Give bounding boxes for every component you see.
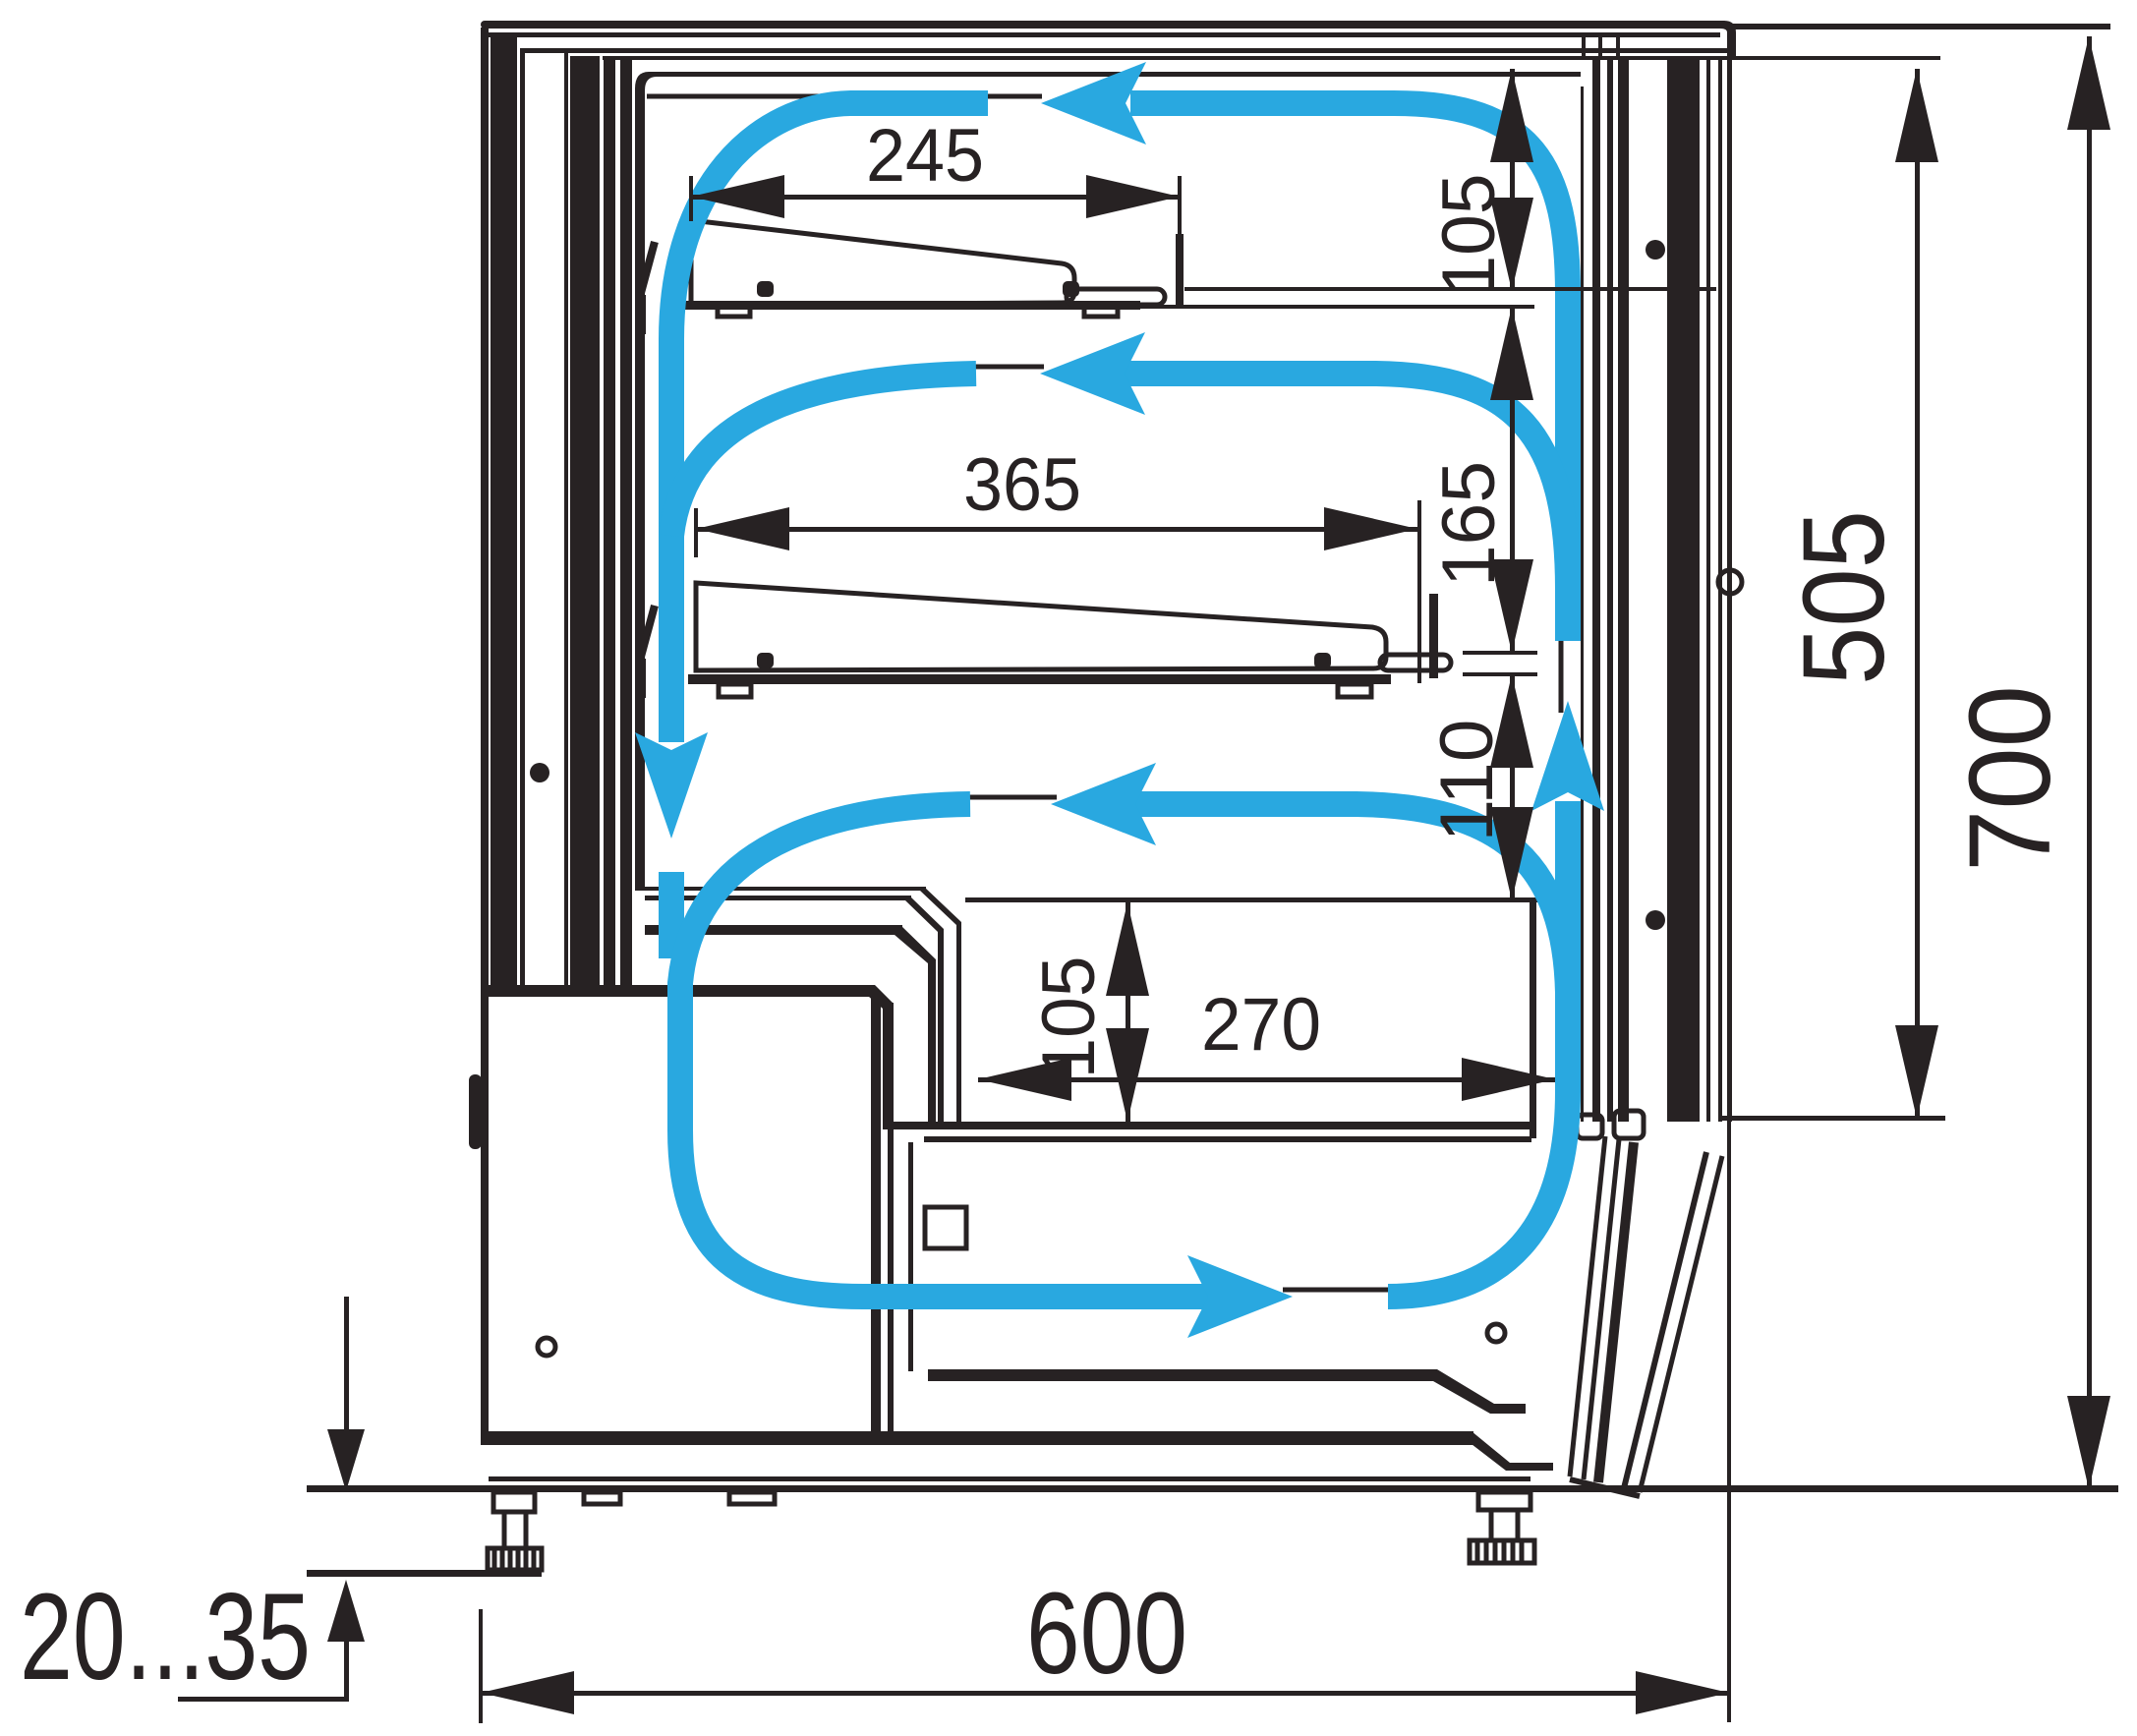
svg-text:110: 110: [1425, 720, 1509, 842]
svg-text:165: 165: [1427, 461, 1511, 587]
svg-text:505: 505: [1779, 510, 1909, 685]
svg-text:105: 105: [1427, 174, 1511, 297]
svg-text:600: 600: [1026, 1569, 1187, 1699]
svg-text:365: 365: [963, 443, 1081, 527]
svg-text:20...35: 20...35: [20, 1569, 311, 1706]
svg-text:270: 270: [1201, 983, 1321, 1067]
svg-text:245: 245: [866, 114, 984, 198]
svg-text:700: 700: [1945, 685, 2075, 872]
